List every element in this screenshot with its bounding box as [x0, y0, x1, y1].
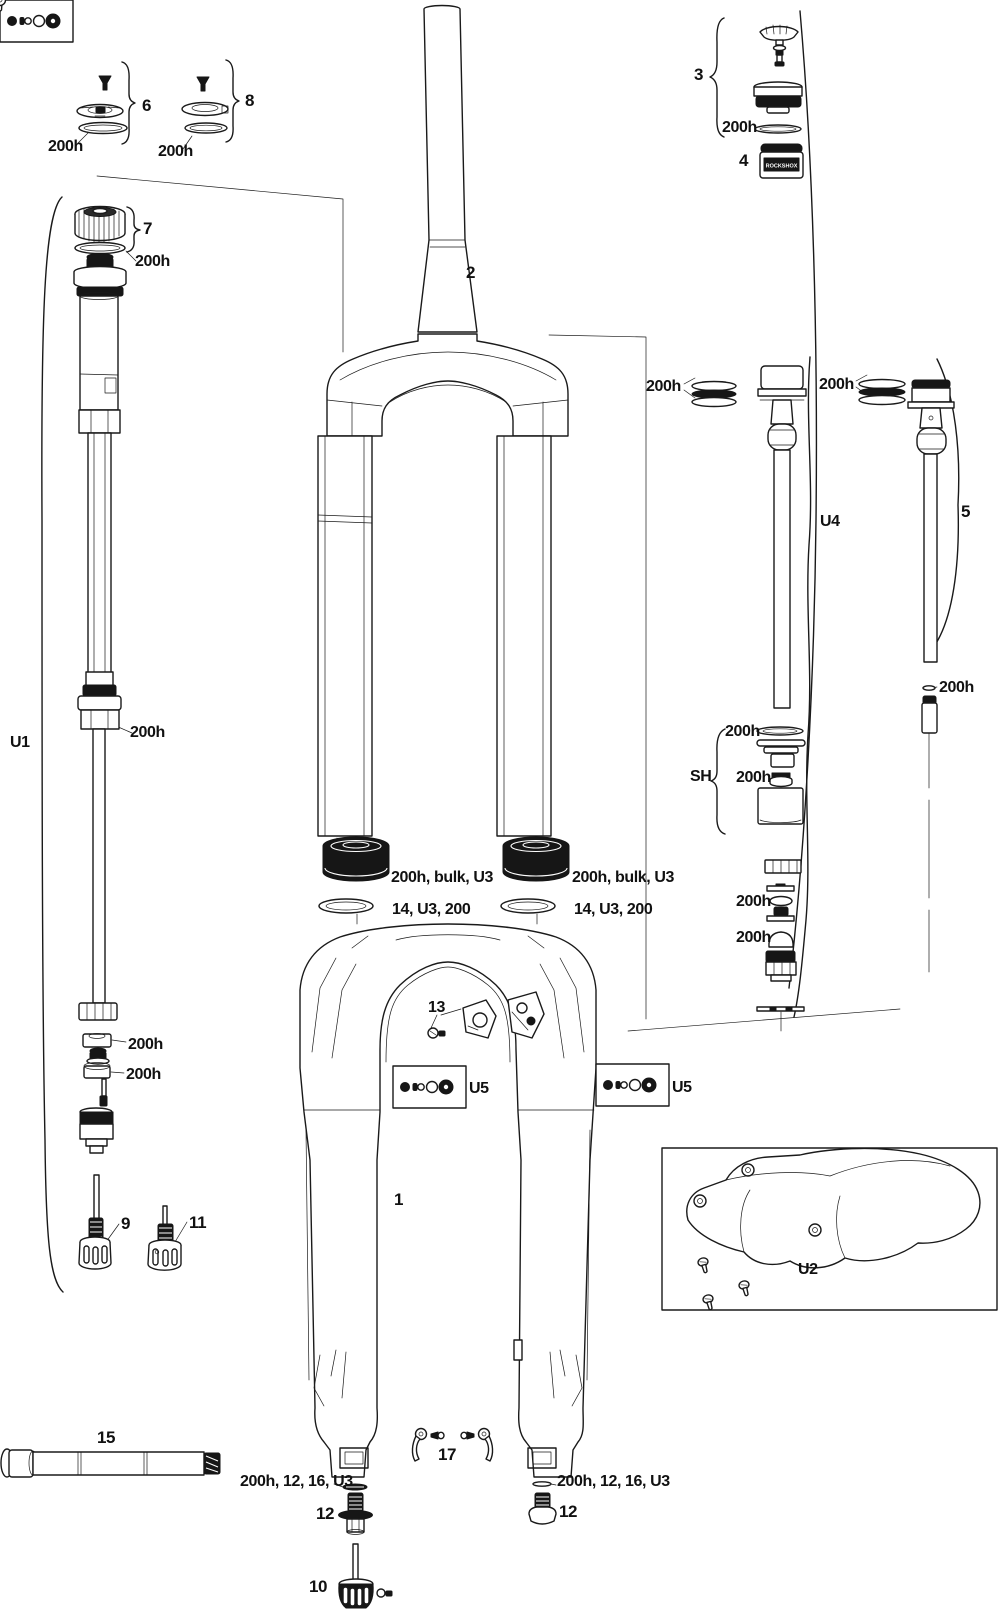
rebound-knob-11 [148, 1206, 181, 1270]
fender-screw [697, 1257, 711, 1274]
shaft-bolt-12-right [529, 1493, 556, 1524]
shaft-bolt-12-left [339, 1493, 373, 1535]
valve-core-3 [774, 40, 786, 66]
rebound-knob-9 [79, 1175, 111, 1269]
fender [687, 1148, 980, 1267]
shaft-small-parts [922, 686, 937, 972]
exploded-parts-diagram: ROCKSHOX [0, 0, 1000, 1618]
crush-washer-right [533, 1482, 551, 1486]
top-cap-8 [182, 77, 228, 133]
thru-axle-15 [1, 1449, 220, 1477]
fender-screw [702, 1294, 716, 1311]
steerer-tube [418, 6, 477, 333]
fender-screw [738, 1280, 752, 1297]
top-cap-6 [77, 76, 127, 134]
foam-ring-right [501, 899, 555, 913]
crush-washer-left [343, 1484, 367, 1490]
guide-screw-right [461, 1432, 474, 1439]
diagram-artwork: ROCKSHOX [0, 0, 1000, 1618]
upper-tube-right [497, 436, 551, 836]
air-top-cap-3 [754, 82, 802, 113]
lower-leg-assembly [300, 924, 596, 1477]
valve-cap-3 [760, 25, 798, 40]
damper-assembly-u1 [74, 254, 126, 1154]
seal-stack-5 [859, 380, 905, 405]
adjuster-screw-10 [377, 1589, 392, 1597]
oring-3 [755, 125, 801, 133]
adjuster-knob-7 [75, 207, 125, 243]
seal-head-group-sh [757, 727, 805, 1011]
rebound-adjuster-10 [339, 1544, 373, 1608]
fork-crown [327, 334, 568, 436]
u5-kit-box-left [393, 1066, 466, 1108]
volume-token-4: ROCKSHOX [760, 144, 803, 178]
cable-guide-right [479, 1429, 493, 1462]
seal-stack-u4 [692, 382, 736, 407]
foam-ring-left [319, 899, 373, 913]
bleed-screw-13 [428, 1028, 445, 1038]
cable-guide-left [412, 1429, 426, 1462]
air-piston-u4 [758, 366, 806, 708]
u5-kit-box-right [596, 1064, 669, 1106]
upper-tube-left [318, 436, 372, 836]
guide-screw-left [431, 1432, 444, 1439]
oring-7 [75, 243, 125, 254]
dust-seal-left [323, 837, 389, 881]
bleed-cover-13 [463, 1000, 496, 1038]
dust-seal-right [503, 837, 569, 881]
token-brand-text: ROCKSHOX [766, 164, 798, 170]
